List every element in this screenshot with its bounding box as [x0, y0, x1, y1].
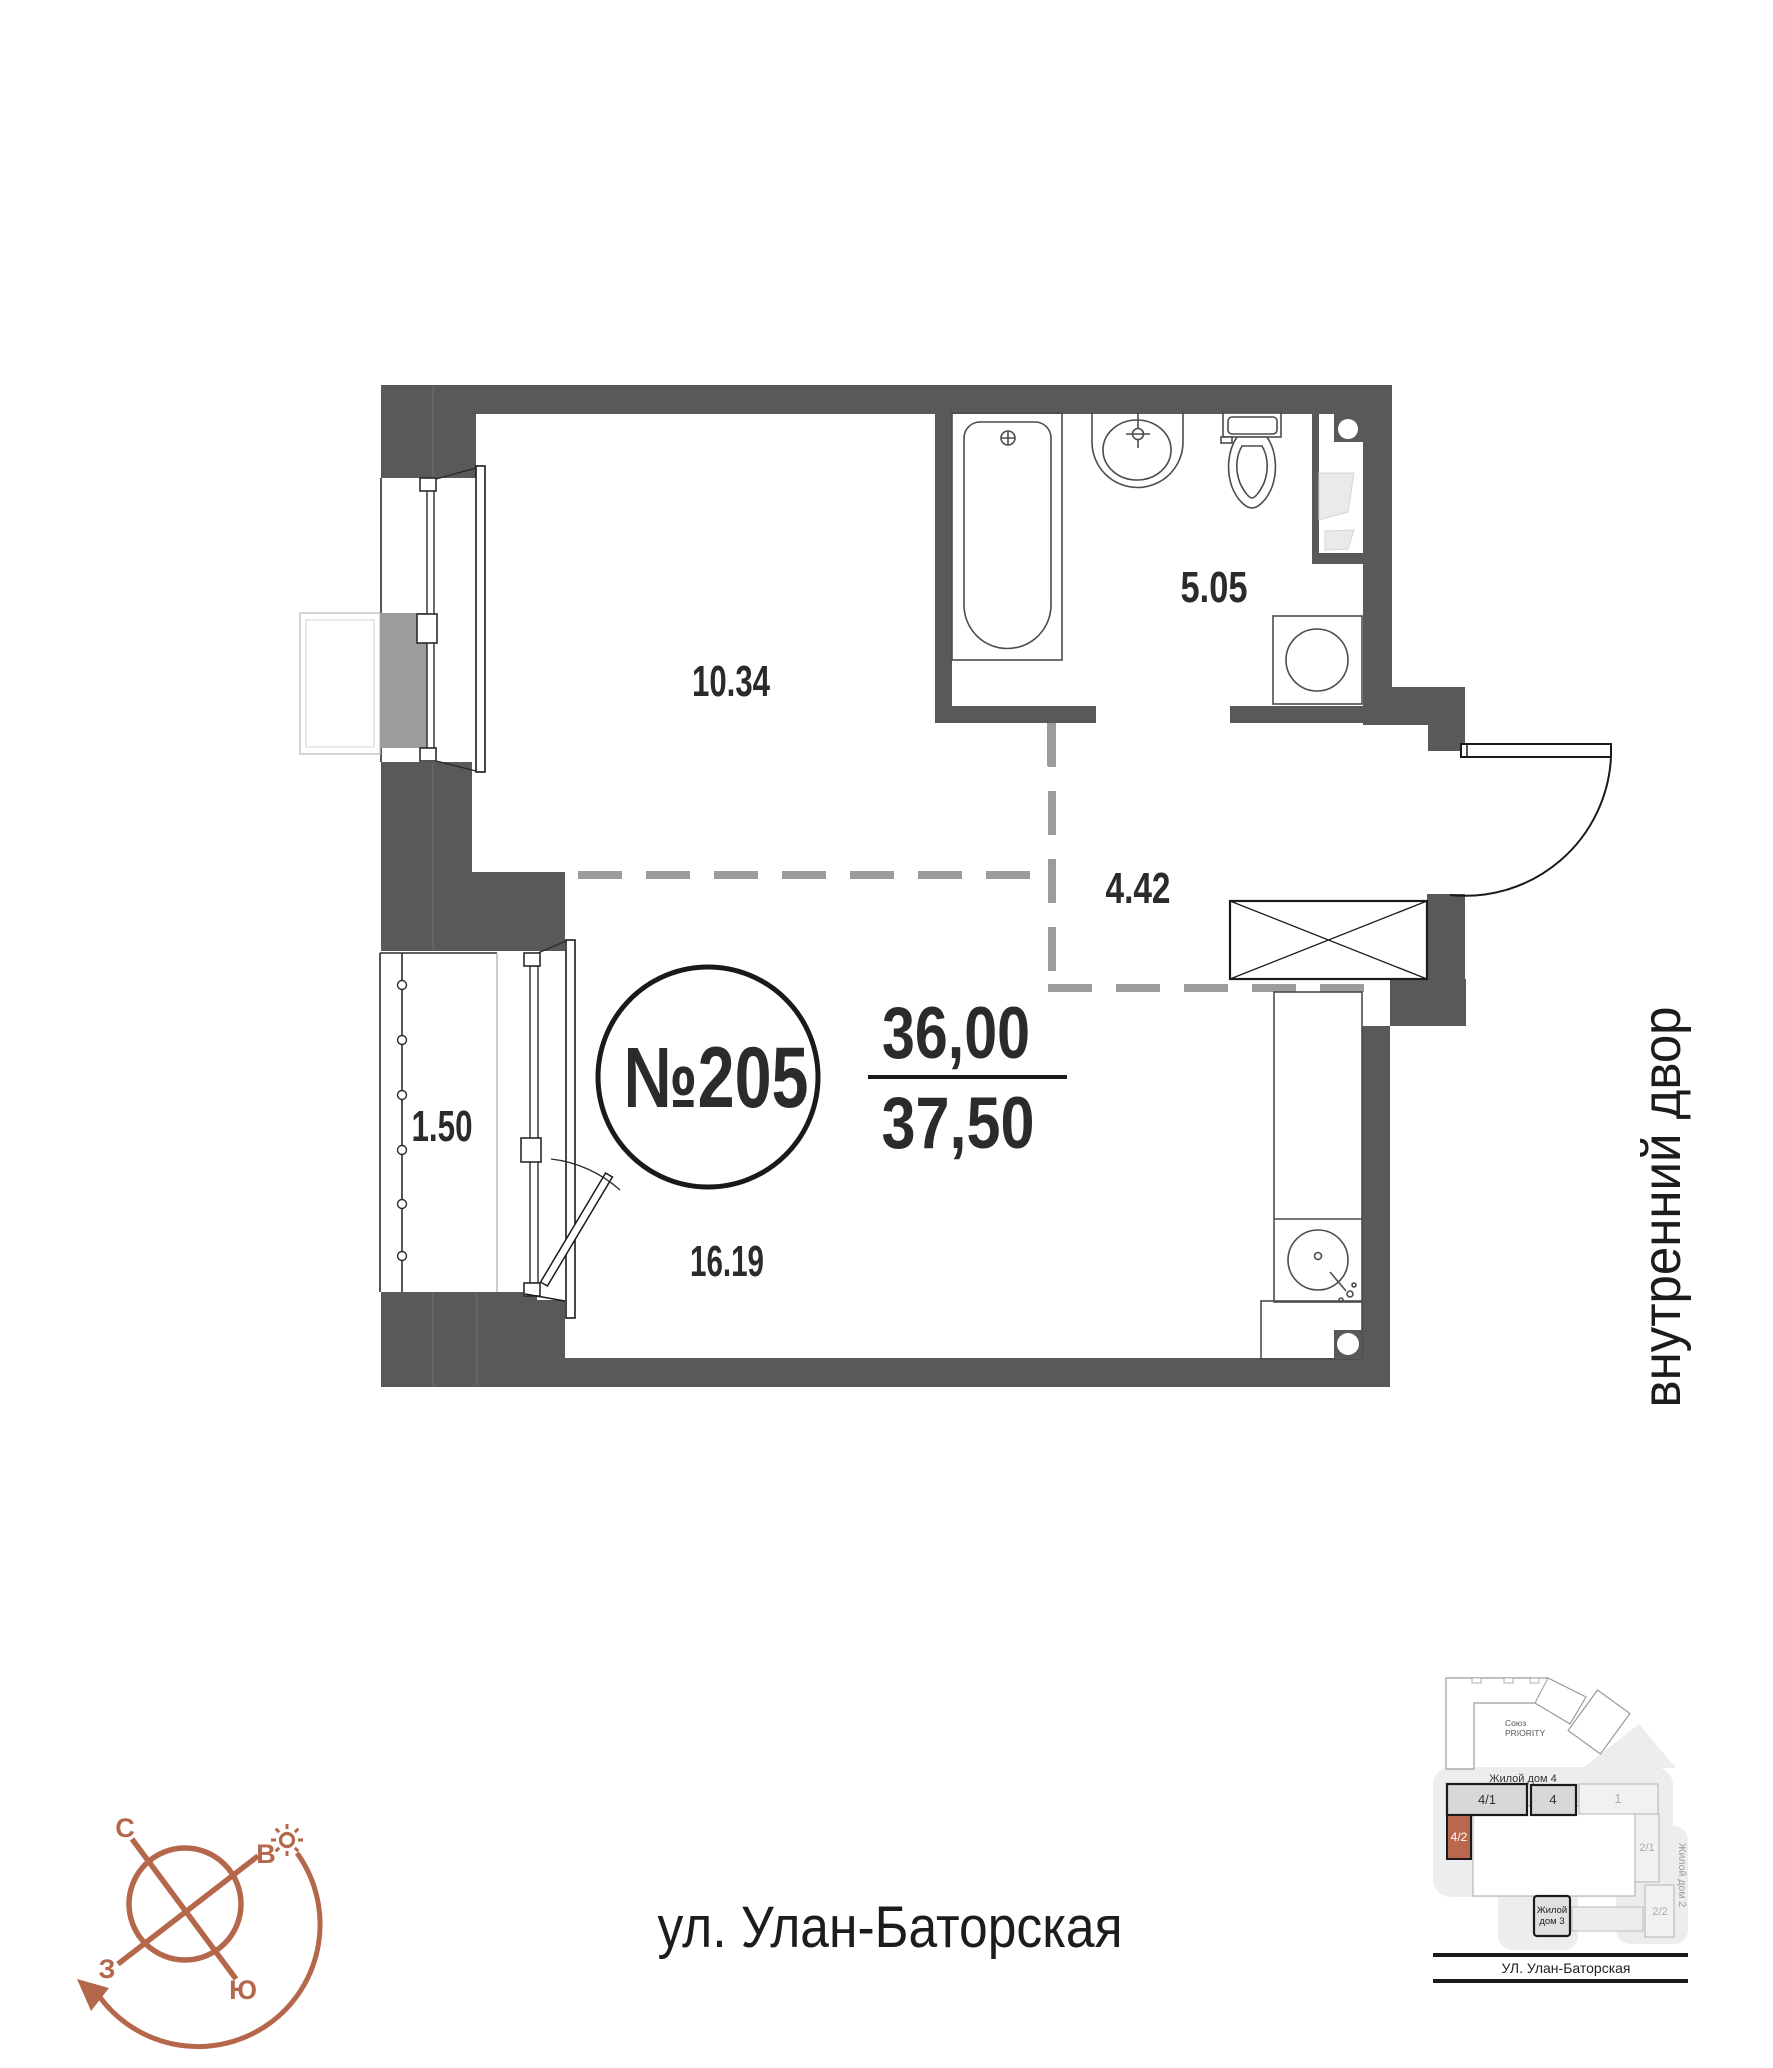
svg-text:внутренний двор: внутренний двор	[1632, 1007, 1692, 1408]
svg-text:5.05: 5.05	[1181, 563, 1248, 612]
svg-text:Жилой: Жилой	[1537, 1905, 1567, 1916]
svg-text:Жилой дом 2: Жилой дом 2	[1676, 1843, 1688, 1908]
svg-text:36,00: 36,00	[882, 993, 1030, 1074]
svg-text:ул. Улан-Баторская: ул. Улан-Баторская	[658, 1895, 1123, 1960]
svg-text:1.50: 1.50	[412, 1102, 473, 1151]
svg-text:№205: №205	[624, 1030, 809, 1126]
svg-text:Ю: Ю	[229, 1975, 257, 2005]
svg-text:2/1: 2/1	[1639, 1842, 1654, 1854]
svg-text:4/2: 4/2	[1451, 1830, 1468, 1844]
svg-text:Союз: Союз	[1505, 1718, 1526, 1728]
svg-text:PRIORITY: PRIORITY	[1505, 1728, 1545, 1738]
svg-text:2/2: 2/2	[1652, 1906, 1667, 1918]
svg-text:С: С	[115, 1813, 135, 1843]
svg-text:4: 4	[1549, 1792, 1556, 1807]
svg-text:4.42: 4.42	[1106, 864, 1171, 913]
svg-text:Жилой дом 4: Жилой дом 4	[1489, 1773, 1556, 1785]
svg-text:10.34: 10.34	[692, 657, 770, 706]
svg-text:1: 1	[1614, 1791, 1621, 1806]
svg-text:В: В	[256, 1839, 276, 1869]
svg-text:37,50: 37,50	[882, 1083, 1035, 1164]
svg-text:16.19: 16.19	[690, 1237, 764, 1286]
svg-text:З: З	[99, 1954, 116, 1984]
svg-text:4/1: 4/1	[1478, 1792, 1496, 1807]
svg-text:дом 3: дом 3	[1539, 1916, 1564, 1927]
svg-text:УЛ. Улан-Баторская: УЛ. Улан-Баторская	[1502, 1960, 1631, 1976]
